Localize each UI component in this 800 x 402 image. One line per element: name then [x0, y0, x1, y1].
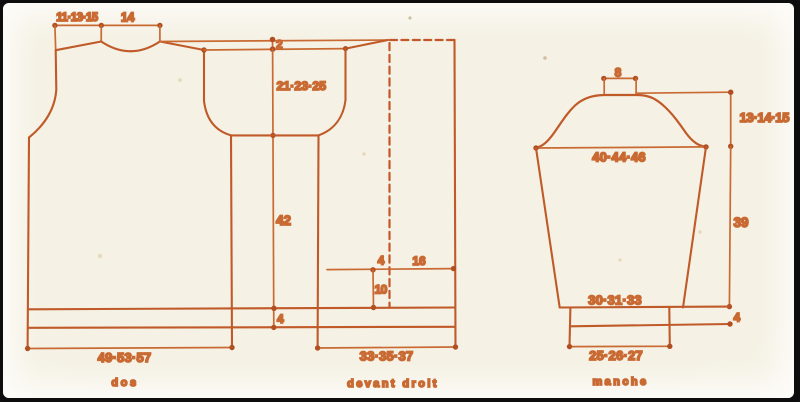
svg-text:30·31·33: 30·31·33	[588, 293, 642, 308]
svg-text:39: 39	[734, 215, 749, 230]
svg-text:10: 10	[375, 283, 388, 297]
svg-text:2: 2	[276, 38, 283, 52]
svg-text:dos: dos	[111, 377, 138, 389]
svg-text:13·14·15: 13·14·15	[740, 110, 790, 125]
svg-text:49·53·57: 49·53·57	[98, 350, 152, 365]
svg-text:4: 4	[378, 254, 385, 268]
svg-text:manche: manche	[593, 376, 649, 388]
svg-text:16: 16	[412, 254, 426, 268]
svg-text:4: 4	[734, 311, 741, 325]
svg-text:14: 14	[121, 11, 135, 25]
svg-text:25·26·27: 25·26·27	[589, 348, 643, 363]
svg-text:11·13·15: 11·13·15	[56, 12, 99, 24]
svg-text:4: 4	[277, 312, 284, 326]
svg-text:40·44·46: 40·44·46	[592, 150, 646, 165]
svg-text:33·35·37: 33·35·37	[360, 349, 414, 364]
svg-text:devant droit: devant droit	[347, 378, 439, 390]
svg-text:8: 8	[615, 66, 622, 80]
svg-text:21·23·25: 21·23·25	[277, 79, 327, 93]
svg-text:42: 42	[276, 213, 291, 228]
